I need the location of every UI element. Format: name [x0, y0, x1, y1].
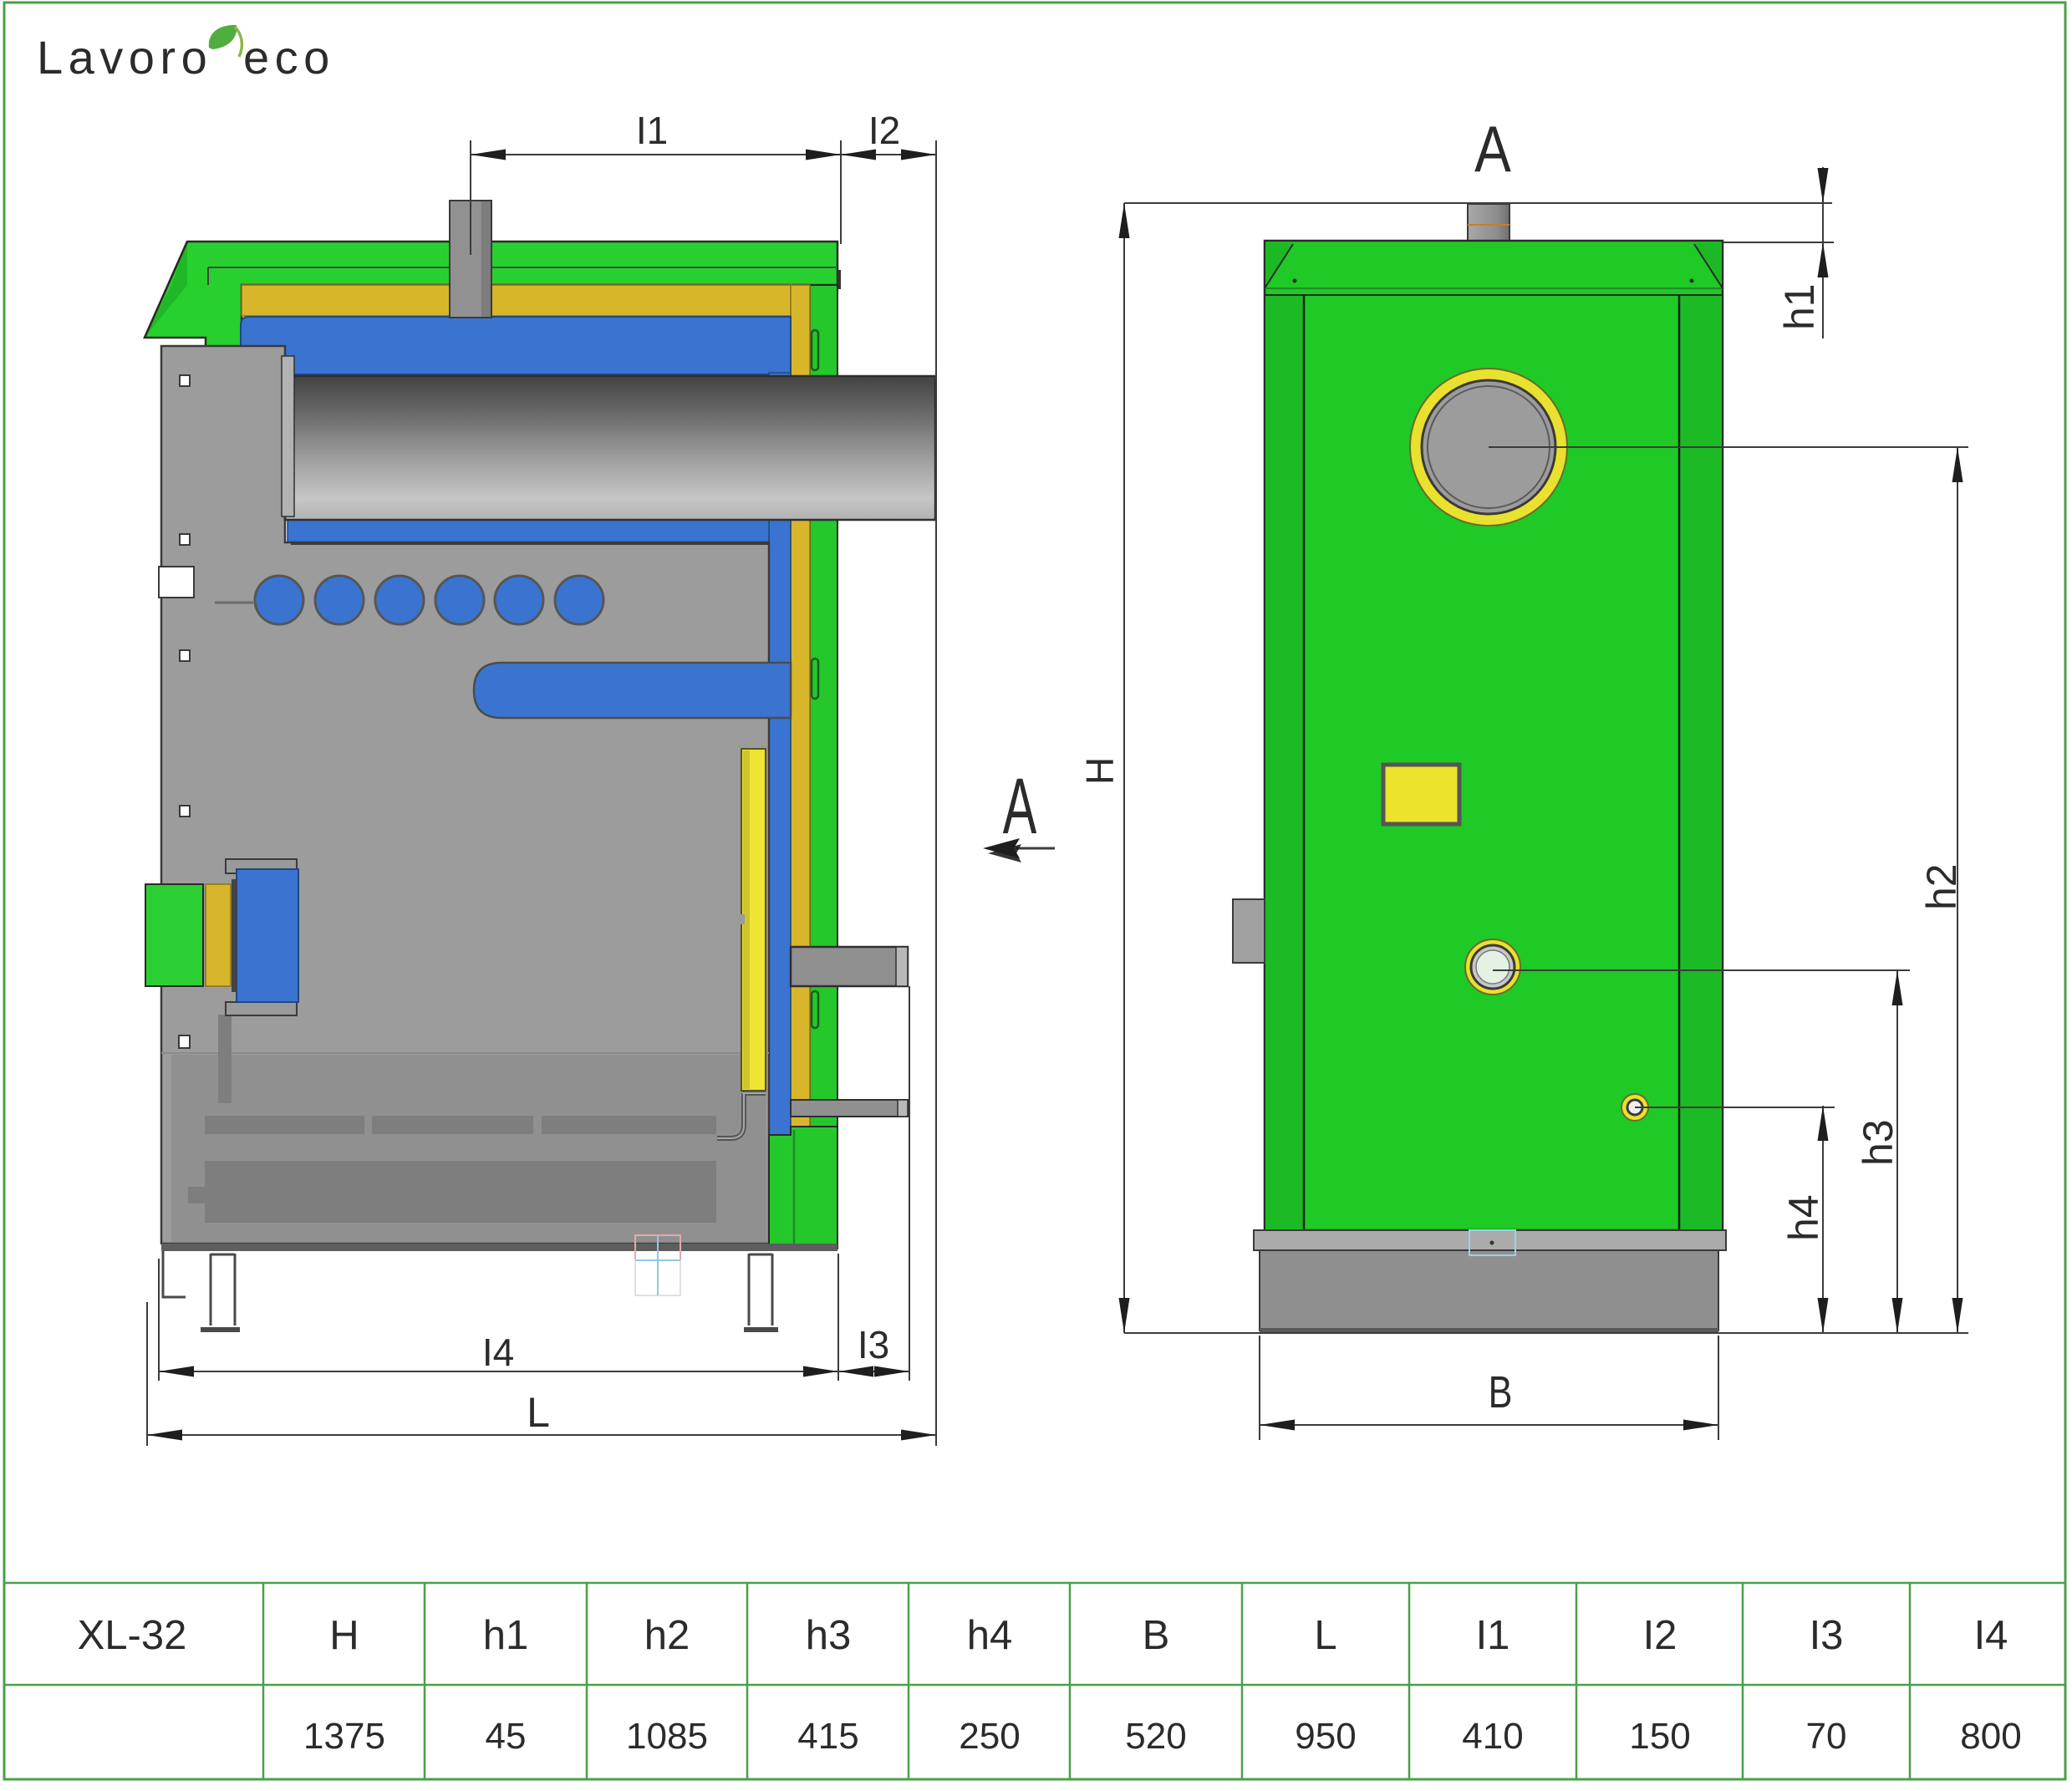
svg-text:L: L [1314, 1613, 1336, 1658]
svg-text:eco: eco [243, 31, 335, 84]
svg-text:h3: h3 [1855, 1119, 1901, 1166]
svg-text:XL-32: XL-32 [78, 1613, 187, 1658]
svg-text:250: 250 [959, 1716, 1020, 1757]
svg-text:I3: I3 [858, 1323, 889, 1366]
svg-text:h4: h4 [967, 1613, 1013, 1658]
svg-text:A: A [1474, 114, 1511, 186]
svg-text:415: 415 [797, 1716, 858, 1757]
svg-text:150: 150 [1629, 1716, 1690, 1757]
svg-text:A: A [1003, 761, 1037, 850]
svg-text:h4: h4 [1780, 1194, 1827, 1241]
svg-text:h1: h1 [483, 1613, 529, 1658]
svg-text:I3: I3 [1810, 1613, 1844, 1658]
svg-text:410: 410 [1462, 1716, 1523, 1757]
svg-text:Lavoro: Lavoro [37, 31, 212, 84]
svg-text:I1: I1 [1476, 1613, 1510, 1658]
svg-text:h3: h3 [806, 1613, 852, 1658]
svg-text:45: 45 [486, 1716, 527, 1757]
svg-text:800: 800 [1960, 1716, 2021, 1757]
svg-text:h2: h2 [1918, 863, 1965, 910]
svg-text:1375: 1375 [303, 1716, 385, 1757]
svg-text:520: 520 [1125, 1716, 1186, 1757]
svg-text:70: 70 [1806, 1716, 1847, 1757]
svg-text:H: H [1078, 757, 1122, 785]
svg-text:I1: I1 [636, 109, 668, 152]
svg-text:950: 950 [1295, 1716, 1356, 1757]
svg-text:I4: I4 [482, 1331, 514, 1374]
svg-text:H: H [329, 1613, 359, 1658]
svg-text:h2: h2 [644, 1613, 690, 1658]
svg-text:1085: 1085 [626, 1716, 708, 1757]
svg-text:B: B [1143, 1613, 1170, 1658]
svg-text:B: B [1489, 1368, 1513, 1418]
svg-text:I2: I2 [1643, 1613, 1677, 1658]
svg-text:L: L [527, 1389, 550, 1436]
svg-text:I2: I2 [868, 109, 900, 152]
svg-text:h1: h1 [1776, 283, 1823, 330]
svg-text:I4: I4 [1974, 1613, 2008, 1658]
